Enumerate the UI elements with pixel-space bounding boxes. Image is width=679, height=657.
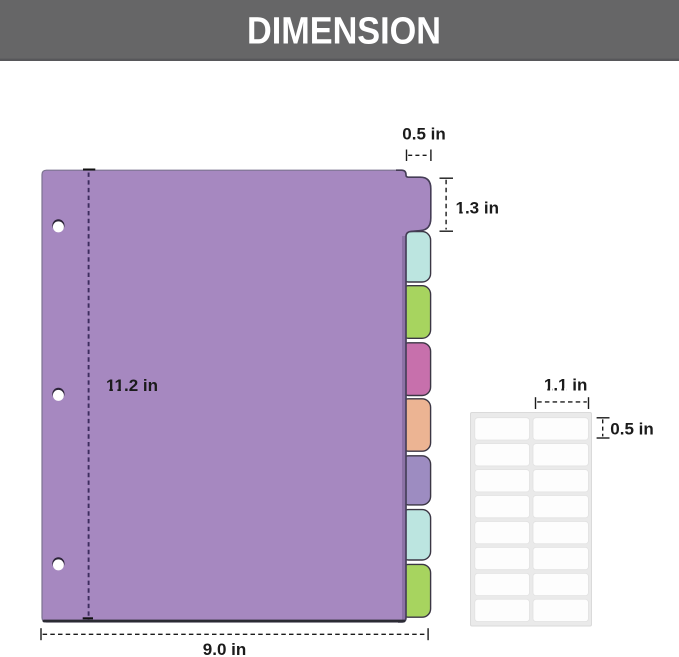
- svg-text:DIMENSION: DIMENSION: [247, 11, 441, 53]
- svg-text:0.5 in: 0.5 in: [610, 419, 653, 438]
- svg-text:0.5 in: 0.5 in: [402, 125, 445, 144]
- svg-text:1.3 in: 1.3 in: [456, 199, 499, 218]
- svg-text:1.1 in: 1.1 in: [544, 376, 587, 395]
- svg-text:9.0 in: 9.0 in: [203, 640, 246, 657]
- svg-text:11.2 in: 11.2 in: [106, 376, 158, 395]
